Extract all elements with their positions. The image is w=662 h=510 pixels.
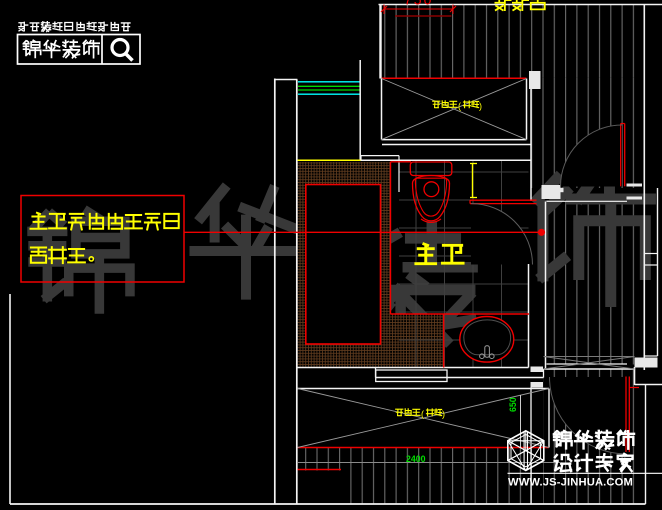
svg-text:): )	[442, 409, 445, 419]
svg-text:(: (	[458, 101, 461, 111]
svg-text:(: (	[421, 409, 424, 419]
svg-text:WWW.JS-JINHUA.COM: WWW.JS-JINHUA.COM	[508, 477, 633, 489]
svg-text:2400: 2400	[406, 454, 426, 464]
svg-text:750: 750	[404, 0, 433, 8]
svg-text:): )	[479, 101, 482, 111]
svg-text:650: 650	[508, 397, 518, 412]
